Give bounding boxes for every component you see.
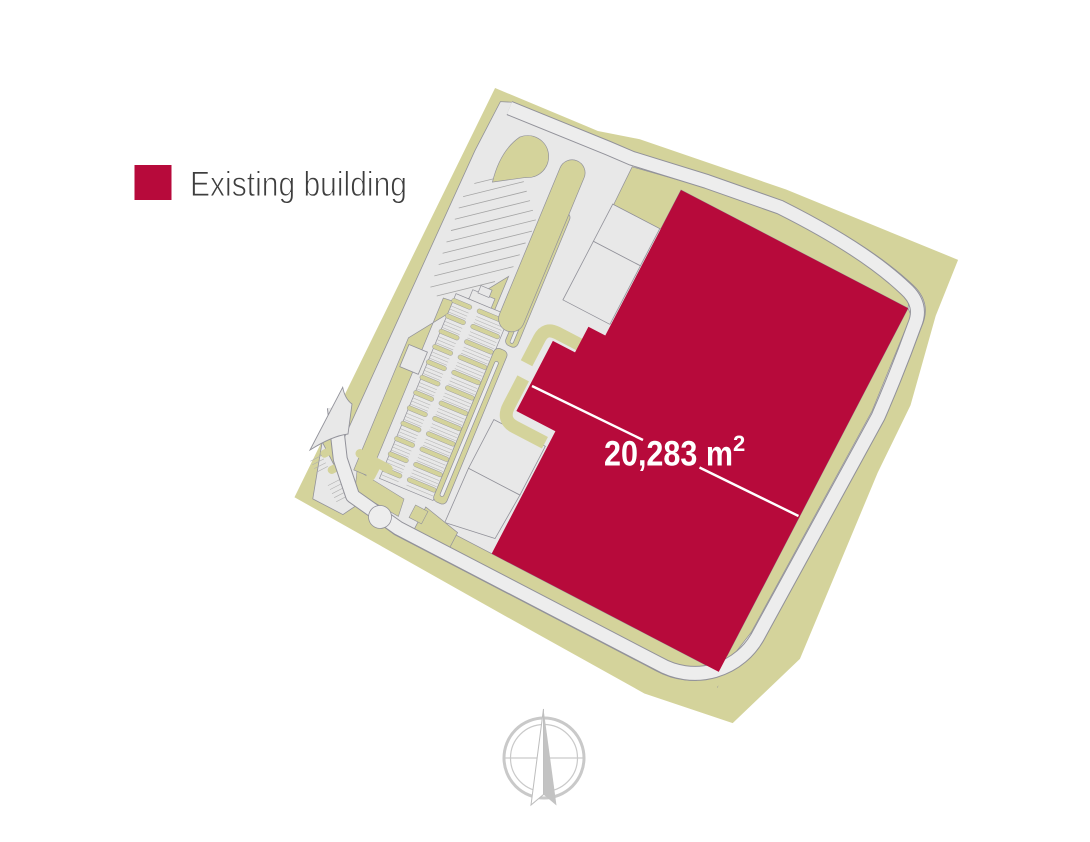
svg-text:Existing building: Existing building [190,165,407,204]
svg-text:20,283 m: 20,283 m [604,435,733,474]
svg-text:2: 2 [733,431,745,456]
